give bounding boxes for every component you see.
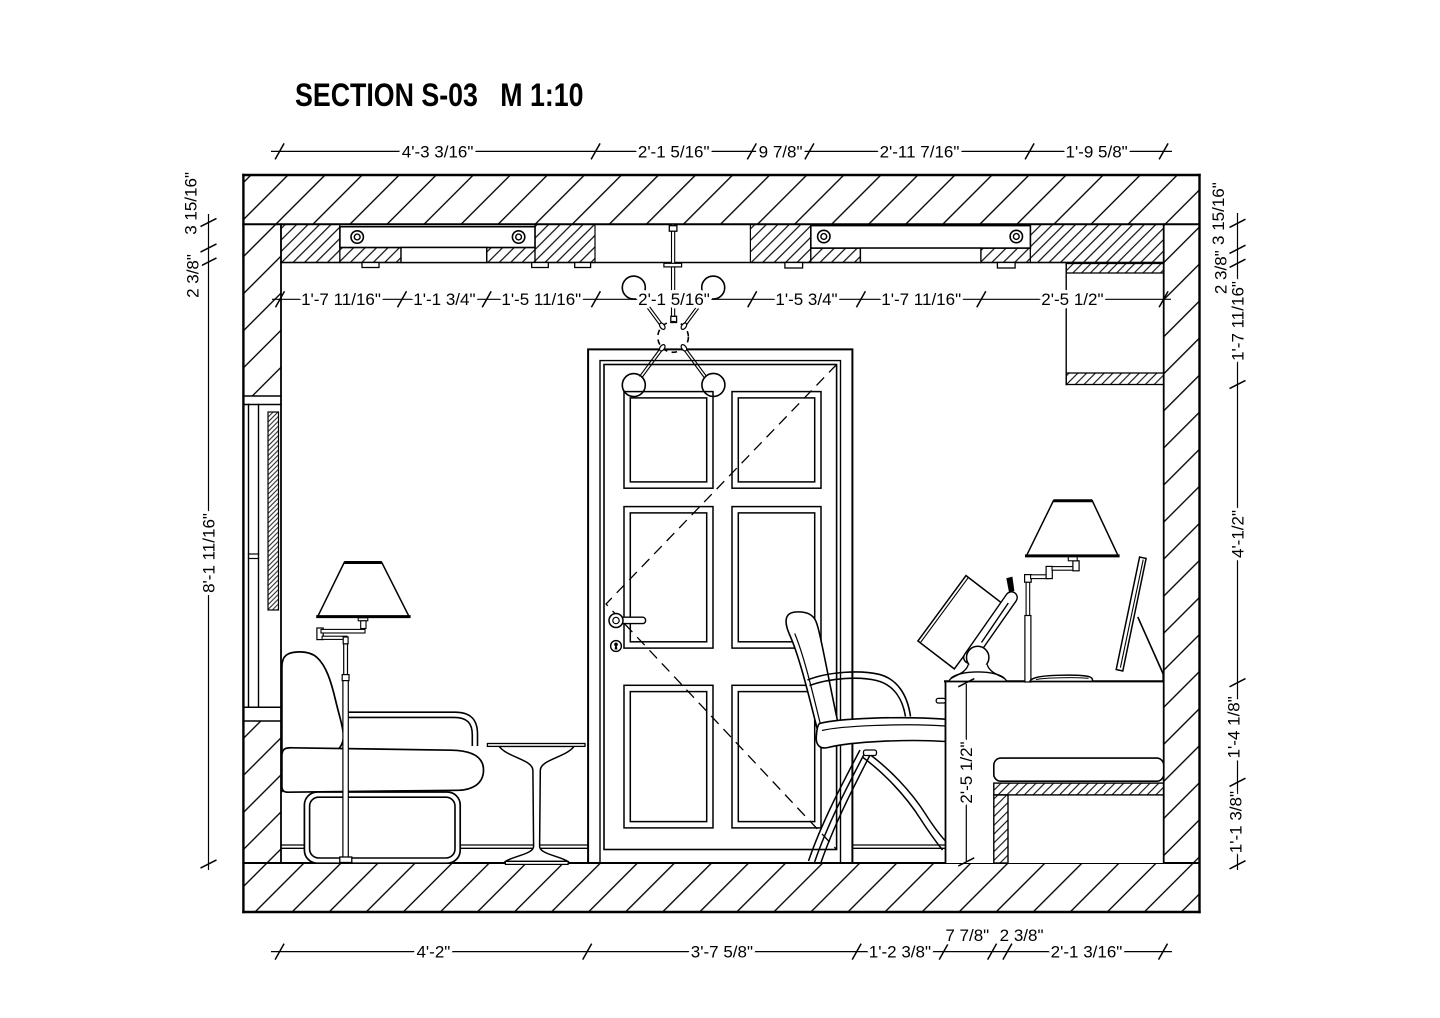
svg-text:1'-9 5/8": 1'-9 5/8" [1065,142,1127,161]
svg-text:2 3/8": 2 3/8" [1000,926,1044,945]
svg-text:1'-5 11/16": 1'-5 11/16" [501,290,581,309]
svg-text:2'-5 1/2": 2'-5 1/2" [1041,290,1103,309]
svg-text:1'-2 3/8": 1'-2 3/8" [869,943,931,962]
svg-text:3 15/16": 3 15/16" [1209,182,1228,245]
svg-text:2'-5 1/2": 2'-5 1/2" [957,741,976,803]
svg-text:1'-4 1/8": 1'-4 1/8" [1224,696,1243,758]
svg-text:1'-7 11/16": 1'-7 11/16" [1228,281,1247,361]
svg-text:7 7/8": 7 7/8" [945,926,989,945]
svg-text:2'-1 5/16": 2'-1 5/16" [638,142,710,161]
svg-text:2'-1 3/16": 2'-1 3/16" [1051,943,1123,962]
svg-text:4'-3 3/16": 4'-3 3/16" [402,142,474,161]
svg-text:1'-7 11/16": 1'-7 11/16" [881,290,961,309]
svg-text:4'-2": 4'-2" [416,943,450,962]
svg-text:1'-1 3/8": 1'-1 3/8" [1226,791,1245,853]
svg-text:1'-5 3/4": 1'-5 3/4" [775,290,837,309]
svg-text:1'-7 11/16": 1'-7 11/16" [301,290,381,309]
svg-text:8'-1 11/16": 8'-1 11/16" [199,513,218,593]
svg-text:2'-1 5/16": 2'-1 5/16" [638,290,710,309]
svg-text:1'-1 3/4": 1'-1 3/4" [413,290,475,309]
svg-text:2'-11 7/16": 2'-11 7/16" [880,142,960,161]
svg-text:3 15/16": 3 15/16" [182,172,201,235]
svg-text:2 3/8": 2 3/8" [184,254,203,298]
svg-text:SECTION S-03 M 1:10: SECTION S-03 M 1:10 [295,77,584,113]
svg-text:4'-1/2": 4'-1/2" [1228,510,1247,558]
svg-text:9 7/8": 9 7/8" [759,142,803,161]
svg-text:3'-7 5/8": 3'-7 5/8" [691,943,753,962]
